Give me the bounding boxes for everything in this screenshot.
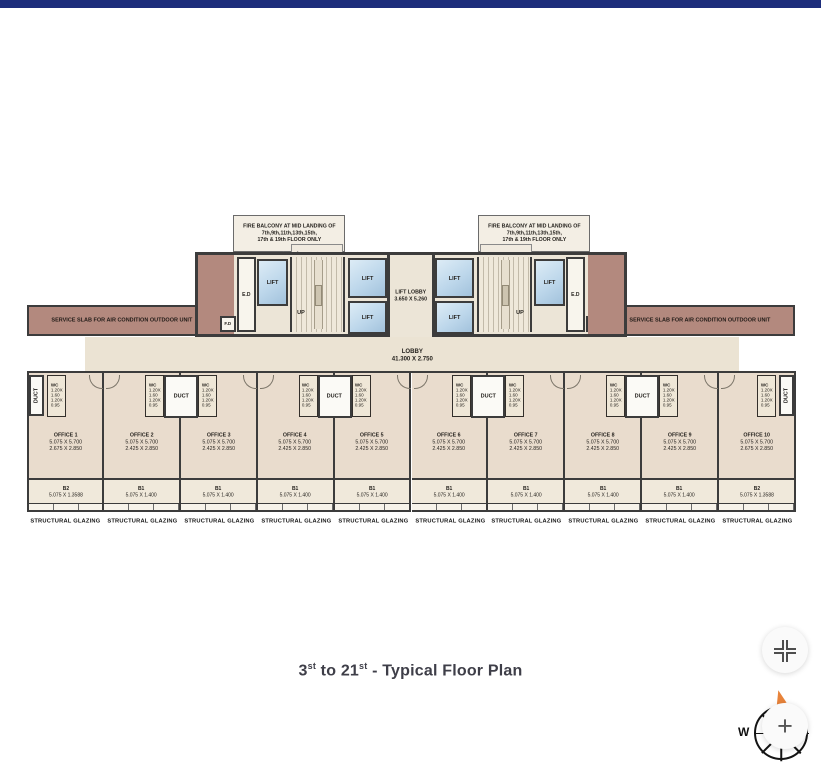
wc-box: WC1.20X1.601.20X0.95	[606, 375, 625, 417]
balcony-label: B15.075 X 1.400	[335, 480, 410, 505]
wc-box: WC1.20X1.601.20X0.95	[505, 375, 524, 417]
service-slab-connector	[588, 255, 624, 334]
office-label: OFFICE 85.075 X 5.7002.425 X 2.850	[565, 421, 640, 465]
plus-icon: +	[768, 704, 802, 750]
lobby: LOBBY 41.300 X 2.750	[85, 337, 739, 373]
glazing-strip	[104, 503, 179, 512]
fd-room: F.D	[220, 316, 236, 332]
glazing-strip	[29, 503, 102, 512]
office-label: OFFICE 55.075 X 5.7002.425 X 2.850	[335, 421, 410, 465]
structural-glazing-label: STRUCTURAL GLAZING	[335, 514, 412, 528]
office-label: OFFICE 45.075 X 5.7002.425 X 2.850	[258, 421, 333, 465]
glazing-strip	[181, 503, 256, 512]
lift-cab: LIFT	[534, 259, 565, 306]
ed-shaft: E.D	[237, 257, 256, 332]
balcony: B25.075 X 1.3588	[719, 478, 794, 505]
balcony: B15.075 X 1.400	[642, 478, 717, 505]
wc-box: WC1.20X1.601.20X0.95	[198, 375, 217, 417]
stairwell	[290, 257, 345, 332]
stair-newel	[315, 285, 322, 307]
office-label: OFFICE 95.075 X 5.7002.425 X 2.850	[642, 421, 717, 465]
office-label: OFFICE 105.075 X 5.7002.675 X 2.850	[719, 421, 794, 465]
lift-lobby: LIFT LOBBY 3.650 X 5.260	[390, 252, 432, 337]
glazing-strip	[565, 503, 640, 512]
lift-cab: LIFT	[435, 301, 474, 334]
balcony-label: B15.075 X 1.400	[258, 480, 333, 505]
balcony-label: B15.075 X 1.400	[565, 480, 640, 505]
office-label: OFFICE 65.075 X 5.7002.425 X 2.850	[412, 421, 487, 465]
balcony: B15.075 X 1.400	[335, 478, 410, 505]
collapse-icon	[774, 640, 796, 662]
balcony-label: B25.075 X 1.3588	[719, 480, 794, 505]
wc-box: WC1.20X1.601.20X0.95	[757, 375, 776, 417]
balcony: B15.075 X 1.400	[412, 478, 487, 505]
glazing-strip	[412, 503, 487, 512]
ed-shaft: E.D	[566, 257, 585, 332]
office-label: OFFICE 35.075 X 5.7002.425 X 2.850	[181, 421, 256, 465]
duct-box: DUCT	[471, 375, 505, 418]
wc-box: WC1.20X1.601.20X0.95	[452, 375, 471, 417]
floor-plan-canvas[interactable]: FIRE BALCONY AT MID LANDING OF 7th,9th,1…	[0, 0, 821, 640]
glazing-strip	[335, 503, 410, 512]
floor-caption: 3st to 21st - Typical Floor Plan	[0, 661, 821, 680]
balcony: B15.075 X 1.400	[258, 478, 333, 505]
fullscreen-collapse-button[interactable]	[762, 627, 808, 673]
wc-box: WC1.20X1.601.20X0.95	[352, 375, 371, 417]
wc-box: WC1.20X1.601.20X0.95	[299, 375, 318, 417]
core-right: LIFT LIFT UP LIFT E.D F.D	[432, 252, 627, 337]
glazing-strip	[642, 503, 717, 512]
service-slab-right: SERVICE SLAB FOR AIR CONDITION OUTDOOR U…	[605, 305, 795, 336]
structural-glazing-label: STRUCTURAL GLAZING	[488, 514, 565, 528]
duct-box: DUCT	[29, 375, 44, 416]
balcony-label: B25.075 X 1.3588	[29, 480, 102, 505]
structural-glazing-label: STRUCTURAL GLAZING	[642, 514, 719, 528]
glazing-label-row: STRUCTURAL GLAZINGSTRUCTURAL GLAZINGSTRU…	[27, 514, 796, 528]
structural-glazing-label: STRUCTURAL GLAZING	[412, 514, 489, 528]
wc-box: WC1.20X1.601.20X0.95	[47, 375, 66, 417]
structural-glazing-label: STRUCTURAL GLAZING	[181, 514, 258, 528]
structural-glazing-label: STRUCTURAL GLAZING	[258, 514, 335, 528]
lift-cab: LIFT	[435, 258, 474, 298]
structural-glazing-label: STRUCTURAL GLAZING	[27, 514, 104, 528]
office-label: OFFICE 75.075 X 5.7002.425 X 2.850	[488, 421, 563, 465]
balcony-label: B15.075 X 1.400	[488, 480, 563, 505]
stair-newel	[502, 285, 509, 307]
duct-box: DUCT	[164, 375, 198, 418]
core-left: E.D F.D LIFT UP LIFT LIFT	[195, 252, 390, 337]
balcony-label: B15.075 X 1.400	[642, 480, 717, 505]
glazing-strip	[719, 503, 794, 512]
duct-box: DUCT	[318, 375, 352, 418]
duct-box: DUCT	[779, 375, 794, 416]
duct-box: DUCT	[625, 375, 659, 418]
balcony-label: B15.075 X 1.400	[412, 480, 487, 505]
service-slab-left: SERVICE SLAB FOR AIR CONDITION OUTDOOR U…	[27, 305, 217, 336]
balcony: B15.075 X 1.400	[181, 478, 256, 505]
lift-cab: LIFT	[257, 259, 288, 306]
structural-glazing-label: STRUCTURAL GLAZING	[565, 514, 642, 528]
balcony: B15.075 X 1.400	[488, 478, 563, 505]
compass-west-label: W	[738, 725, 749, 739]
zoom-in-button[interactable]: +	[762, 703, 808, 749]
wc-box: WC1.20X1.601.20X0.95	[145, 375, 164, 417]
lift-cab: LIFT	[348, 258, 387, 298]
balcony-label: B15.075 X 1.400	[104, 480, 179, 505]
balcony: B15.075 X 1.400	[565, 478, 640, 505]
balcony-label: B15.075 X 1.400	[181, 480, 256, 505]
office-label: OFFICE 15.075 X 5.7002.675 X 2.850	[29, 421, 102, 465]
office-band: OFFICE 15.075 X 5.7002.675 X 2.850B25.07…	[27, 371, 796, 512]
structural-glazing-label: STRUCTURAL GLAZING	[104, 514, 181, 528]
glazing-strip	[488, 503, 563, 512]
balcony: B15.075 X 1.400	[104, 478, 179, 505]
office-label: OFFICE 25.075 X 5.7002.425 X 2.850	[104, 421, 179, 465]
balcony: B25.075 X 1.3588	[29, 478, 102, 505]
wc-box: WC1.20X1.601.20X0.95	[659, 375, 678, 417]
lift-cab: LIFT	[348, 301, 387, 334]
glazing-strip	[258, 503, 333, 512]
structural-glazing-label: STRUCTURAL GLAZING	[719, 514, 796, 528]
stairwell	[477, 257, 532, 332]
